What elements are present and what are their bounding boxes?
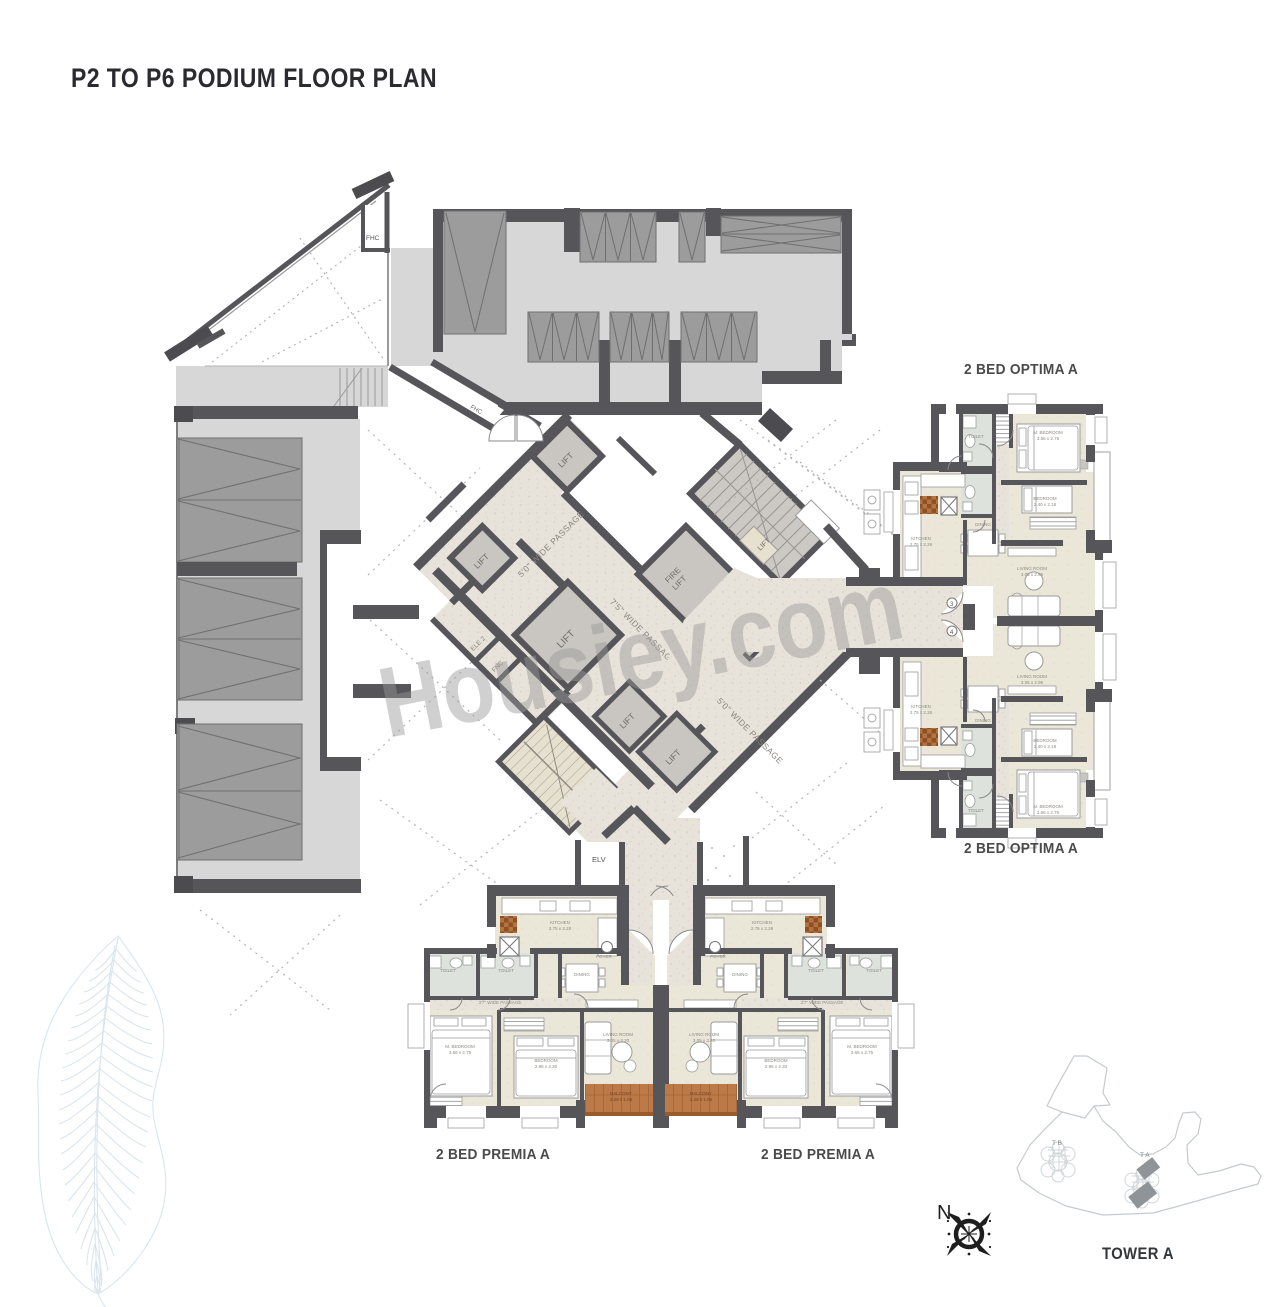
svg-text:2.40 x 2.18: 2.40 x 2.18: [1034, 502, 1057, 507]
svg-text:BEDROOM: BEDROOM: [764, 1058, 788, 1063]
svg-text:3.05 x 3.20: 3.05 x 3.20: [607, 1038, 630, 1043]
svg-text:M. BEDROOM: M. BEDROOM: [445, 1044, 475, 1049]
svg-text:KITCHEN: KITCHEN: [550, 920, 570, 925]
svg-text:M. BEDROOM: M. BEDROOM: [847, 1044, 877, 1049]
svg-text:2.75 x 2.28: 2.75 x 2.28: [751, 926, 774, 931]
svg-text:2.75 x 2.28: 2.75 x 2.28: [549, 926, 572, 931]
svg-text:2.29 x 1.06: 2.29 x 1.06: [690, 1097, 713, 1102]
svg-text:3'7" WIDE PASSAGE: 3'7" WIDE PASSAGE: [801, 1000, 844, 1005]
svg-text:M. BEDROOM: M. BEDROOM: [1033, 804, 1063, 809]
svg-text:KITCHEN: KITCHEN: [911, 536, 931, 541]
svg-text:N: N: [937, 1202, 951, 1224]
svg-text:FOYER: FOYER: [596, 954, 612, 959]
svg-text:LIVING ROOM: LIVING ROOM: [689, 1032, 719, 1037]
svg-text:TOILET: TOILET: [968, 434, 984, 439]
svg-text:M. BEDROOM: M. BEDROOM: [1033, 430, 1063, 435]
svg-text:BALCONY: BALCONY: [690, 1091, 712, 1096]
svg-text:T B: T B: [1052, 1140, 1062, 1147]
svg-text:FOYER: FOYER: [710, 954, 726, 959]
svg-text:3.05 x 3.20: 3.05 x 3.20: [693, 1038, 716, 1043]
svg-text:TOILET: TOILET: [440, 968, 456, 973]
svg-text:DINING: DINING: [732, 972, 748, 977]
svg-text:LIVING ROOM: LIVING ROOM: [1017, 674, 1047, 679]
svg-text:2 BED PREMIA A: 2 BED PREMIA A: [761, 1146, 875, 1163]
svg-text:3.66 x 2.75: 3.66 x 2.75: [449, 1050, 472, 1055]
svg-text:TOWER A: TOWER A: [1102, 1245, 1174, 1263]
svg-text:KITCHEN: KITCHEN: [911, 704, 931, 709]
svg-text:T A: T A: [1140, 1152, 1150, 1159]
svg-text:2.75 x 2.28: 2.75 x 2.28: [910, 710, 933, 715]
svg-text:2 BED PREMIA A: 2 BED PREMIA A: [436, 1146, 550, 1163]
svg-text:2.95 x 2.30: 2.95 x 2.30: [765, 1064, 788, 1069]
svg-text:BEDROOM: BEDROOM: [1033, 496, 1057, 501]
svg-text:2.29 x 1.06: 2.29 x 1.06: [610, 1097, 633, 1102]
svg-text:TOILET: TOILET: [808, 968, 824, 973]
svg-text:DINING: DINING: [975, 718, 991, 723]
svg-text:KITCHEN: KITCHEN: [752, 920, 772, 925]
svg-text:2.75 x 2.28: 2.75 x 2.28: [910, 542, 933, 547]
svg-text:3.56 x 2.75: 3.56 x 2.75: [1037, 810, 1060, 815]
svg-text:LIVING ROOM: LIVING ROOM: [603, 1032, 633, 1037]
svg-text:DINING: DINING: [574, 972, 590, 977]
svg-text:BEDROOM: BEDROOM: [534, 1058, 558, 1063]
svg-text:TOILET: TOILET: [968, 808, 984, 813]
svg-text:FHC: FHC: [366, 235, 380, 242]
svg-text:3'7" WIDE PASSAGE: 3'7" WIDE PASSAGE: [479, 1000, 522, 1005]
svg-text:BALCONY: BALCONY: [610, 1091, 632, 1096]
svg-text:BEDROOM: BEDROOM: [1033, 738, 1057, 743]
svg-text:3.56 x 2.75: 3.56 x 2.75: [1037, 436, 1060, 441]
svg-text:3.05 x 2.95: 3.05 x 2.95: [1021, 680, 1044, 685]
svg-text:2.40 x 2.18: 2.40 x 2.18: [1034, 744, 1057, 749]
svg-text:DINING: DINING: [975, 522, 991, 527]
svg-text:ELV: ELV: [592, 855, 606, 864]
svg-text:2.95 x 2.30: 2.95 x 2.30: [535, 1064, 558, 1069]
svg-text:2 BED OPTIMA A: 2 BED OPTIMA A: [964, 840, 1078, 857]
svg-text:LIVING ROOM: LIVING ROOM: [1017, 566, 1047, 571]
svg-text:TOILET: TOILET: [866, 968, 882, 973]
svg-text:P2 TO P6 PODIUM FLOOR PLAN: P2 TO P6 PODIUM FLOOR PLAN: [71, 63, 437, 93]
svg-text:TOILET: TOILET: [498, 968, 514, 973]
svg-text:3.66 x 2.75: 3.66 x 2.75: [851, 1050, 874, 1055]
svg-text:3.05 x 2.95: 3.05 x 2.95: [1021, 572, 1044, 577]
svg-text:2 BED OPTIMA A: 2 BED OPTIMA A: [964, 361, 1078, 378]
